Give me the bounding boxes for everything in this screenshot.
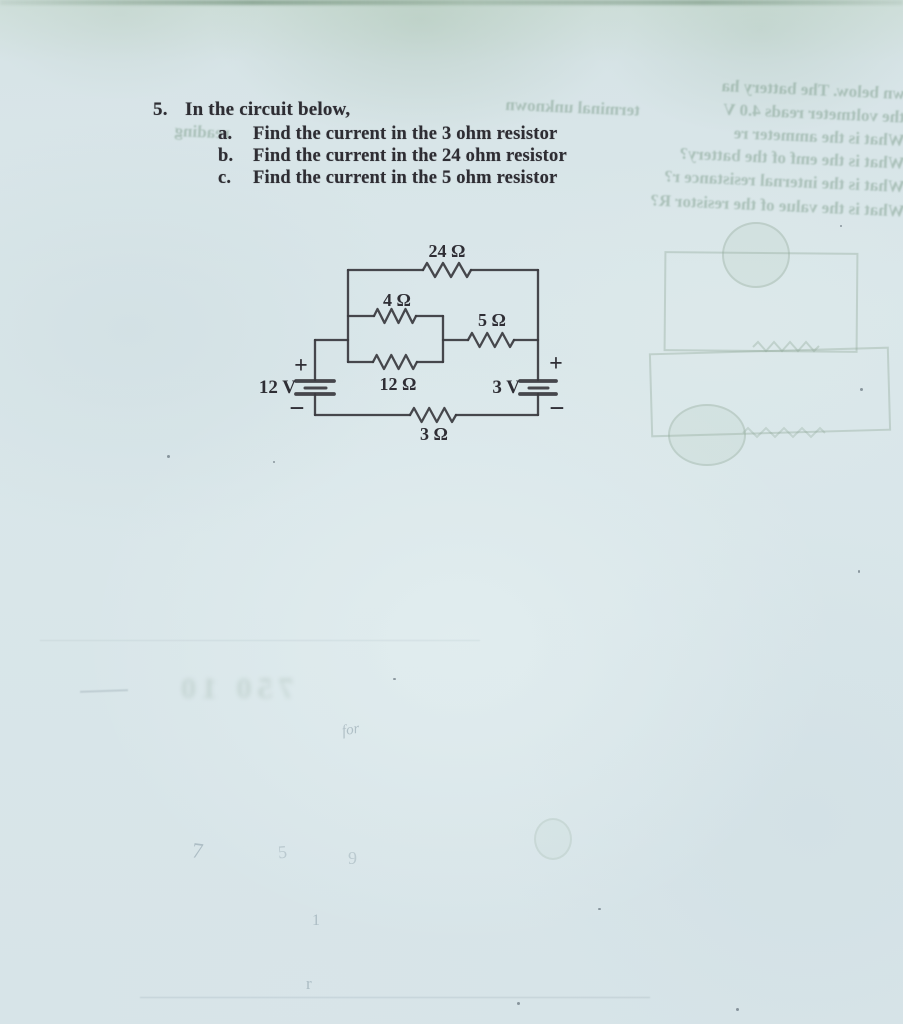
pencil-mark: 1 (312, 912, 320, 930)
resistor-zigzag (373, 355, 417, 369)
paper-speck (167, 455, 170, 458)
minus-sign: − (549, 393, 564, 423)
paper-crease (140, 997, 650, 998)
plus-sign: + (549, 351, 563, 377)
pencil-mark: r (306, 974, 312, 994)
pencil-mark: 5 (277, 842, 288, 864)
resistor-zigzag (374, 309, 416, 323)
paper-speck (840, 225, 842, 227)
resistor-zigzag (410, 408, 456, 422)
resistor-3ohm-label: 3 Ω (420, 424, 448, 444)
resistor-5ohm-label: 5 Ω (478, 310, 506, 330)
resistor-4ohm-label: 4 Ω (383, 290, 411, 310)
pencil-mark: for (341, 721, 361, 741)
resistor-4ohm: 4 Ω (374, 290, 416, 323)
scanned-worksheet-page: wn below. The battery ha the voltmeter r… (0, 0, 903, 1024)
paper-speck (598, 908, 601, 910)
paper-speck (517, 1002, 520, 1005)
minus-sign: − (289, 393, 304, 423)
resistor-zigzag (468, 333, 514, 347)
pencil-mark: 9 (348, 848, 357, 869)
paper-speck (273, 461, 275, 463)
paper-speck (393, 678, 396, 680)
resistor-12ohm-label: 12 Ω (380, 374, 417, 394)
paper-speck (858, 570, 860, 573)
resistor-zigzag (423, 263, 471, 277)
circuit-diagram: 24 Ω 4 Ω 5 Ω 12 Ω 3 Ω 12 V + − (0, 0, 903, 1024)
resistor-24ohm-label: 24 Ω (429, 241, 466, 261)
paper-crease (40, 640, 480, 641)
resistor-24ohm: 24 Ω (423, 241, 471, 277)
resistor-12ohm: 12 Ω (373, 355, 417, 394)
resistor-5ohm: 5 Ω (468, 310, 514, 347)
battery-3v: 3 V + − (492, 351, 564, 423)
battery-12v: 12 V + − (259, 353, 334, 423)
paper-speck (736, 1008, 739, 1011)
battery-3v-label: 3 V (492, 377, 520, 398)
resistor-3ohm: 3 Ω (410, 408, 456, 444)
paper-speck (860, 388, 863, 391)
plus-sign: + (294, 353, 308, 379)
